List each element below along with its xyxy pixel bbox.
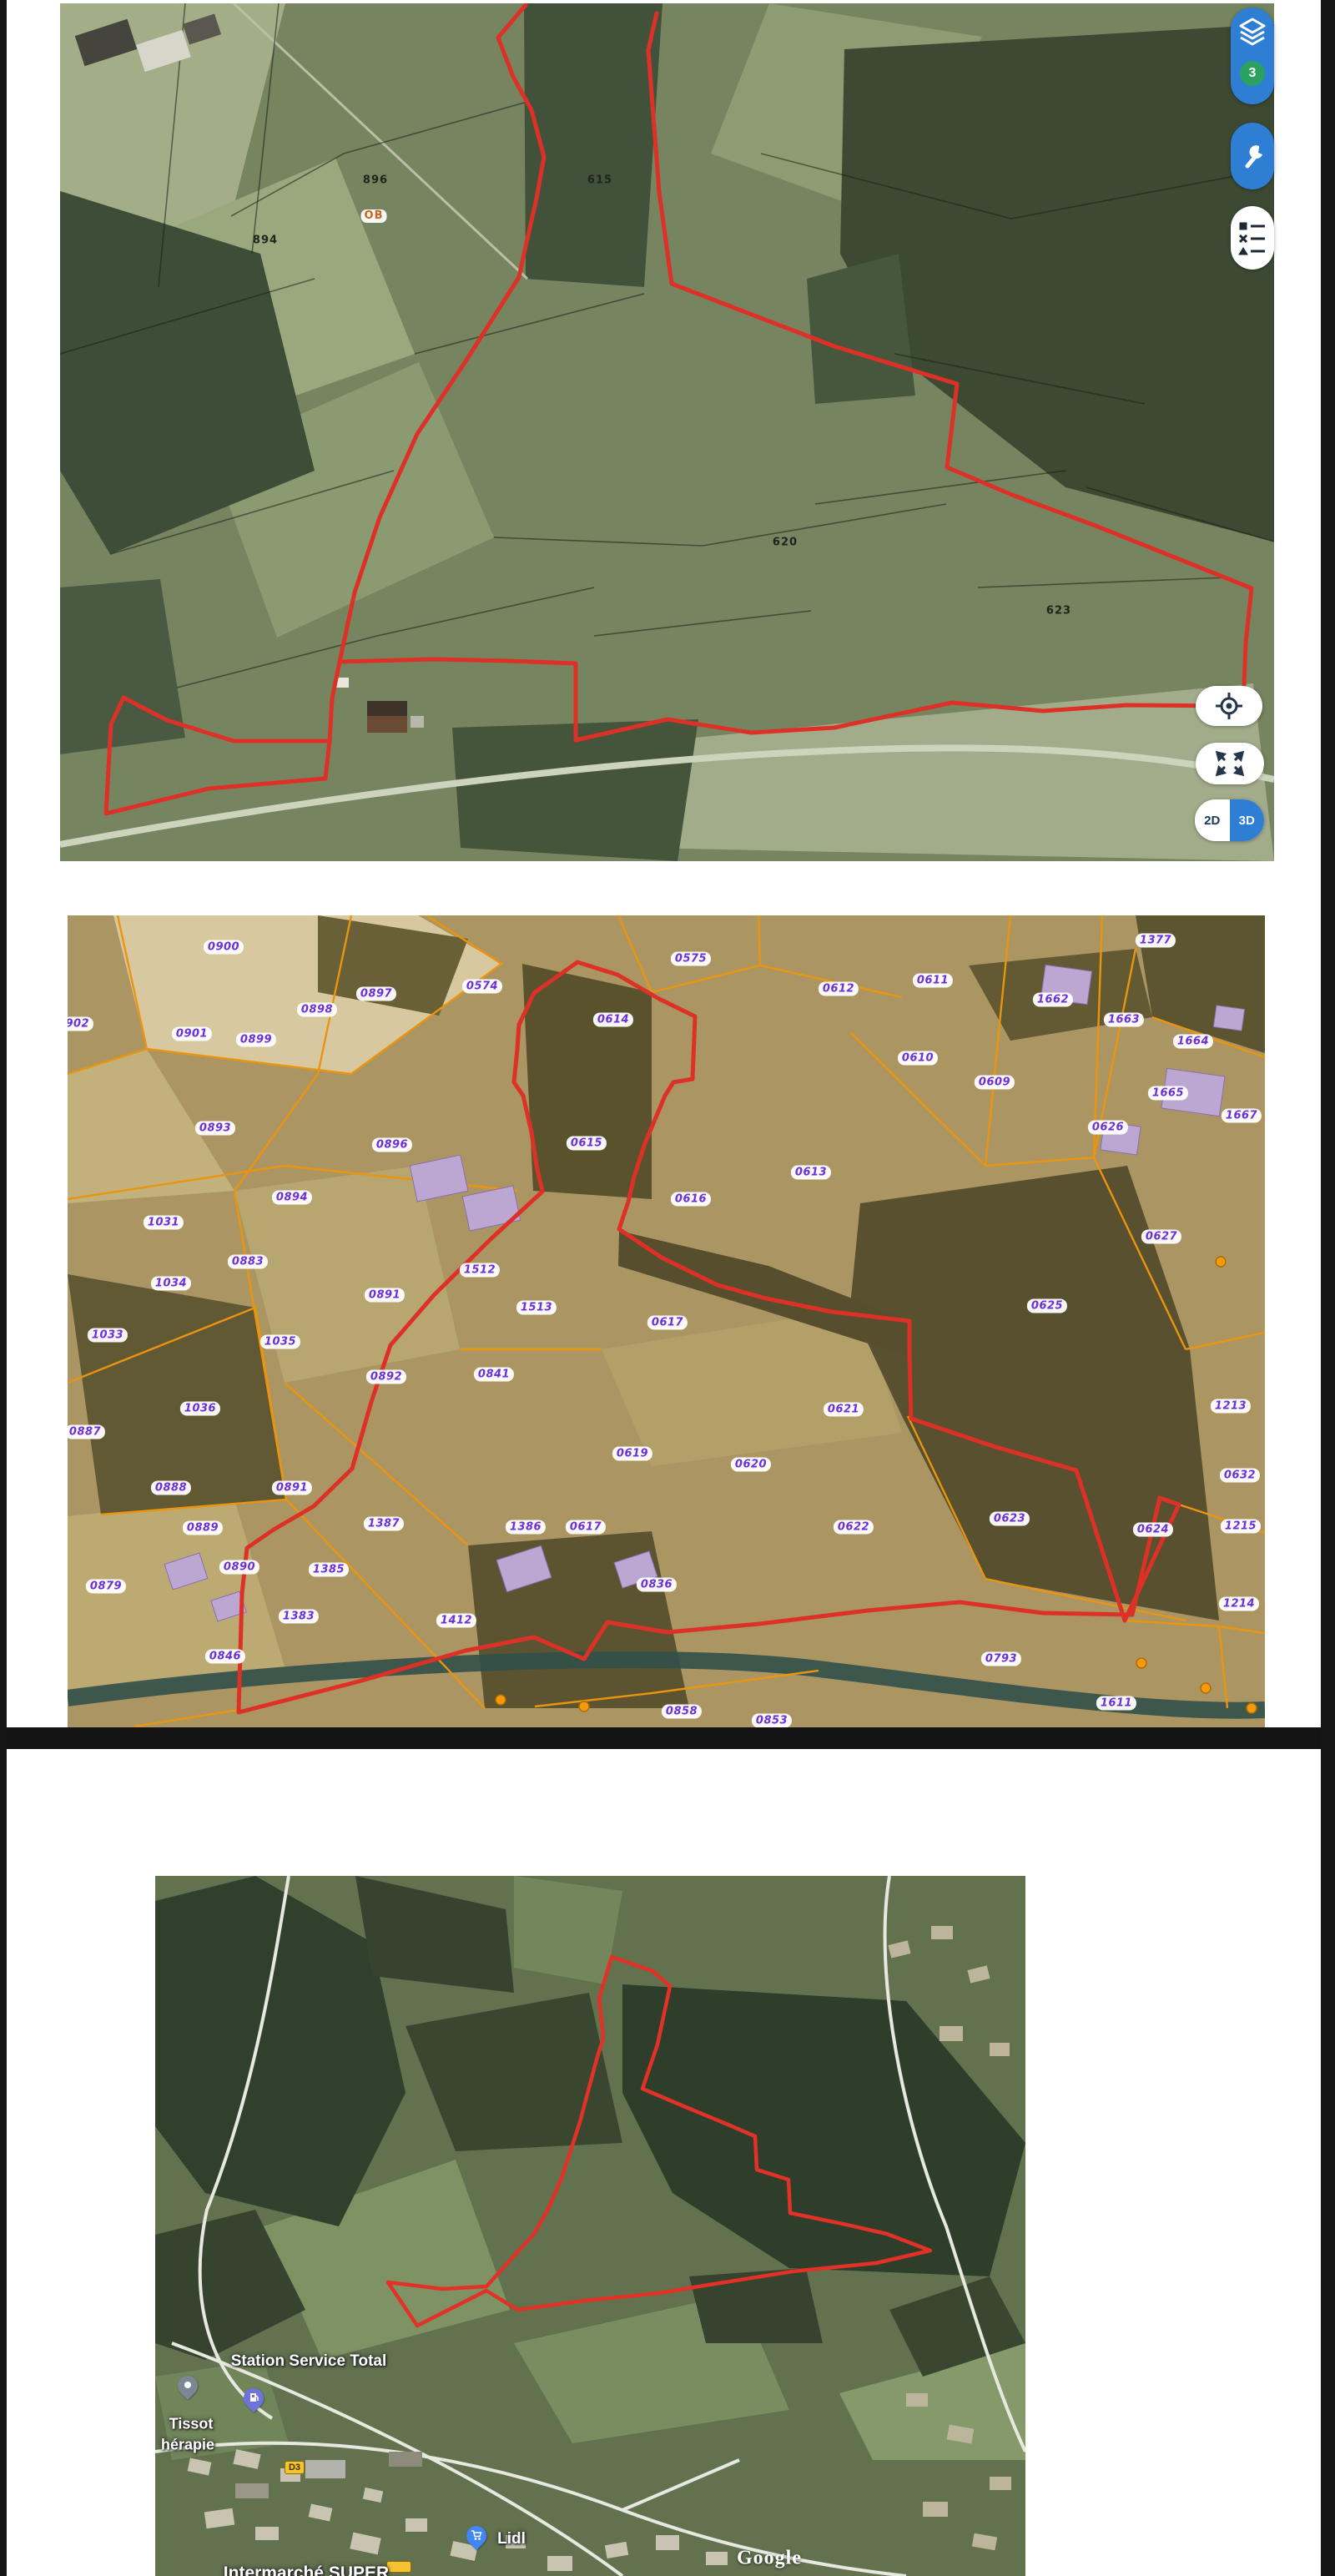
parcel-number: 896 (363, 174, 388, 187)
parcel-label: 0575 (671, 952, 711, 966)
parcel-label: 0891 (272, 1481, 312, 1495)
parcel-label: 0611 (913, 974, 953, 988)
poi-intermarche-label: Intermarché SUPER (224, 2563, 389, 2576)
parcel-label: 0902 (68, 1017, 93, 1031)
parcel-label: 0894 (272, 1191, 312, 1205)
google-watermark: Google (737, 2548, 802, 2570)
tools-button[interactable] (1231, 123, 1274, 189)
parcel-label: 0836 (637, 1578, 677, 1592)
parcel-label: 1665 (1148, 1086, 1188, 1101)
poi-tissot-label-line2: hérapie (161, 2437, 214, 2454)
aerial-map-top-canvas (60, 3, 1274, 861)
parcel-label: 0617 (647, 1316, 688, 1330)
parcel-label: 0609 (975, 1076, 1015, 1090)
place-dot-icon (181, 2378, 194, 2392)
parcel-label: 0617 (566, 1520, 606, 1535)
parcel-label: 0614 (593, 1013, 633, 1027)
parcel-label: 0899 (236, 1033, 276, 1047)
parcel-label: 0615 (567, 1137, 607, 1151)
parcel-label: 1034 (151, 1277, 191, 1291)
parcel-label: 1385 (309, 1563, 349, 1577)
parcel-label: 1377 (1136, 934, 1176, 948)
parcel-number: 894 (253, 234, 278, 247)
parcel-label: 0610 (898, 1051, 938, 1066)
layers-count-badge: 3 (1240, 61, 1265, 86)
parcel-label: 1664 (1173, 1035, 1213, 1049)
legend-button[interactable] (1231, 206, 1274, 270)
parcel-label: 0616 (671, 1192, 711, 1207)
2d-button[interactable]: 2D (1195, 799, 1230, 841)
fuel-pump-icon (247, 2391, 260, 2404)
parcel-label: 0893 (195, 1122, 235, 1136)
wrench-icon (1237, 141, 1267, 171)
poi-tissot-label-line1: Tissot (169, 2416, 214, 2433)
lidl-pin[interactable] (466, 2526, 488, 2548)
parcel-label: 1031 (144, 1216, 184, 1230)
parcel-number: OB (361, 209, 387, 223)
parcel-label: 0888 (151, 1481, 191, 1495)
parcel-label: 0574 (462, 980, 502, 994)
cadastral-map-middle[interactable]: 0900089708980901089909020893089608941031… (68, 915, 1265, 1727)
page: 896OB894615620623 3 (0, 0, 1335, 2576)
parcel-label: 1386 (506, 1520, 546, 1535)
target-icon (1215, 692, 1243, 720)
legend-list-icon (1237, 219, 1268, 256)
parcel-label: 0890 (219, 1560, 259, 1575)
parcel-label: 0841 (474, 1368, 514, 1382)
parcel-label: 1412 (436, 1614, 476, 1628)
parcel-label: 1387 (364, 1517, 404, 1531)
parcel-label: 1214 (1219, 1597, 1259, 1611)
aerial-map-top[interactable]: 896OB894615620623 (60, 3, 1274, 861)
parcel-number: 623 (1046, 605, 1071, 618)
expand-arrows-icon (1213, 749, 1247, 779)
parcel-label: 0620 (731, 1458, 771, 1472)
parcel-label: 0626 (1088, 1121, 1128, 1135)
google-satellite-map-bottom[interactable]: Station Service Total Tissot hérapie D3 … (155, 1876, 1025, 2576)
layers-button[interactable]: 3 (1231, 8, 1274, 104)
parcel-label: 1663 (1104, 1013, 1144, 1027)
road-number-badge: D3 (285, 2461, 305, 2474)
shopping-cart-icon (470, 2528, 483, 2542)
parcel-label: 0632 (1220, 1469, 1260, 1483)
parcel-label: 0900 (204, 940, 244, 955)
parcel-label: 0896 (372, 1138, 412, 1152)
parcel-label: 0846 (205, 1650, 245, 1664)
parcel-label: 1667 (1222, 1109, 1262, 1123)
parcel-label: 1512 (460, 1263, 500, 1278)
parcel-label: 0853 (752, 1714, 792, 1728)
parcel-label: 0879 (86, 1580, 126, 1594)
generic-place-pin[interactable] (178, 2376, 199, 2397)
parcel-label: 0858 (662, 1705, 702, 1719)
parcel-label: 0892 (366, 1370, 406, 1384)
parcel-label: 0883 (228, 1255, 268, 1269)
parcel-number: 615 (587, 174, 612, 187)
parcel-label: 1033 (88, 1328, 128, 1343)
parcel-label: 0619 (612, 1447, 652, 1461)
parcel-label: 1383 (279, 1610, 319, 1624)
locate-button[interactable] (1196, 686, 1262, 726)
parcel-label: 0622 (834, 1520, 874, 1535)
page-left-edge (0, 0, 7, 2576)
parcel-label: 0887 (68, 1425, 105, 1439)
parcel-label: 0621 (824, 1403, 864, 1417)
parcel-label: 0625 (1027, 1299, 1067, 1313)
parcel-label: 1513 (516, 1301, 557, 1315)
parcel-label: 1611 (1096, 1696, 1136, 1711)
parcel-label: 0898 (297, 1003, 337, 1017)
parcel-label: 0793 (981, 1652, 1021, 1666)
parcel-label: 0613 (791, 1166, 831, 1180)
parcel-label: 0624 (1133, 1523, 1173, 1537)
parcel-label: 1035 (260, 1335, 300, 1349)
dimension-toggle: 2D 3D (1195, 799, 1264, 841)
parcel-label: 0897 (356, 987, 396, 1001)
parcel-label: 1662 (1033, 993, 1073, 1007)
fullscreen-button[interactable] (1196, 743, 1264, 784)
parcel-number: 620 (773, 537, 798, 549)
parcel-label: 1213 (1211, 1399, 1251, 1414)
parcel-label: 1036 (180, 1402, 220, 1416)
page-right-edge (1321, 0, 1335, 2576)
parcel-label: 0891 (365, 1288, 405, 1303)
parcel-label: 0612 (819, 982, 859, 996)
parcel-label: 0623 (990, 1512, 1030, 1526)
layers-icon (1236, 16, 1269, 53)
poi-lidl-label: Lidl (497, 2530, 526, 2548)
road-badge-secondary (386, 2561, 411, 2573)
parcel-label: 0889 (183, 1521, 223, 1535)
parcel-label: 0901 (172, 1027, 212, 1041)
section-separator (0, 1727, 1335, 1749)
gas-station-pin[interactable] (244, 2388, 265, 2410)
poi-station-service-total-label: Station Service Total (231, 2352, 387, 2371)
parcel-label: 1215 (1221, 1520, 1261, 1534)
parcel-label: 0627 (1141, 1230, 1181, 1244)
